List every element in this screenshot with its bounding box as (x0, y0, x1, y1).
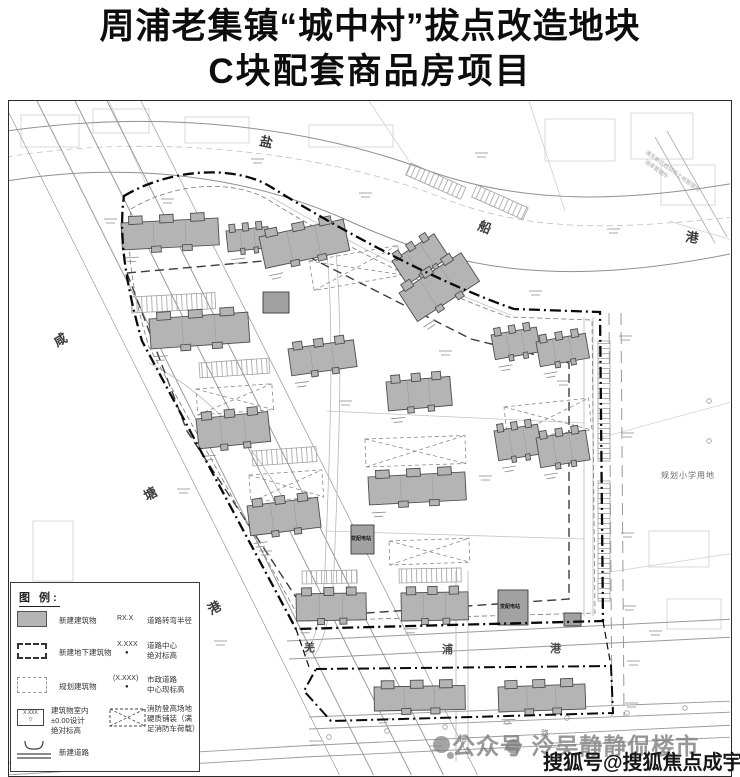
building-tag-text-mark (254, 542, 268, 548)
building-notch (406, 468, 420, 477)
building-tab (555, 463, 561, 470)
canal-label-char: 港 (205, 598, 225, 618)
building-notch (510, 421, 517, 430)
legend-swatch-underground-building (17, 643, 47, 659)
building-notch (497, 424, 504, 433)
building-notch (539, 430, 547, 439)
legend-swatch-new-road (15, 739, 53, 761)
building-tab (511, 456, 516, 463)
fire-pad (389, 538, 470, 565)
annotation-text-mark (214, 641, 227, 645)
building-notch (156, 311, 170, 320)
building-notch (334, 335, 344, 344)
building-notch (437, 467, 451, 476)
fire-pad (365, 436, 466, 467)
top-canal (9, 121, 730, 271)
building-notch (128, 216, 142, 225)
annotation-text-mark (479, 476, 492, 480)
building-notch (406, 587, 416, 595)
building-tab (553, 708, 562, 714)
elevation-dot-icon: ● (125, 650, 129, 656)
facility-label: 变配电站 (351, 535, 371, 542)
tree-icon (625, 711, 630, 716)
building-notch (242, 223, 249, 232)
building-shape (535, 424, 592, 479)
building-tab (243, 441, 251, 448)
title-line-1: 周浦老集镇“城中村”拔点改造地块 (0, 4, 740, 50)
building-body (296, 593, 366, 621)
elevation-dot-icon: ● (125, 684, 129, 690)
building-notch (555, 428, 563, 437)
tree-icon (327, 735, 332, 740)
building-shape (121, 212, 220, 262)
parking-comb (472, 185, 528, 220)
building-notch (449, 586, 459, 594)
parking-comb (131, 293, 216, 313)
building-tab (571, 460, 577, 467)
building-notch (391, 375, 401, 384)
context-lot-outline (631, 113, 693, 159)
annotation-text-mark (439, 351, 452, 355)
school-parcel-label: 规划小学用地 (661, 470, 715, 480)
building-notch (220, 307, 234, 316)
building-notch (555, 331, 563, 340)
building-shape (374, 679, 466, 723)
annotation-text-mark (475, 153, 488, 157)
title-line-2: C块配套商品房项目 (0, 50, 740, 94)
building-tag-text-mark (502, 466, 516, 472)
building-tab (523, 352, 529, 359)
legend-title: 图 例: (19, 589, 60, 607)
facility-building (564, 613, 581, 626)
building-notch (301, 588, 311, 596)
elevation-triangle-icon: ▽ (29, 717, 33, 723)
annotation-text-mark (104, 219, 117, 223)
building-notch (346, 587, 356, 595)
legend-swatch-elevation-box: X.XXX ▽ (17, 709, 44, 726)
building-notch (539, 334, 547, 343)
building-notch (297, 493, 308, 502)
building-notch (410, 680, 423, 688)
elevation-swatch-text: X.XXX (23, 710, 38, 716)
fire-pad (249, 470, 324, 502)
building-shape (258, 213, 353, 280)
building-tab (332, 367, 339, 374)
annotation-text-mark (177, 489, 190, 493)
building-shape (368, 466, 467, 517)
building-notch (292, 341, 302, 350)
annotation-text-mark (557, 381, 570, 385)
canal-label-char: 浦 (442, 642, 453, 656)
building-tab (290, 259, 300, 267)
building-tab (254, 247, 259, 253)
building-tab (407, 407, 414, 414)
building-tab (509, 354, 515, 361)
building-tab (402, 708, 411, 714)
annotation-text-mark (529, 291, 542, 295)
tree-icon (707, 439, 712, 444)
fire-pad-cross (365, 436, 466, 467)
legend-label: 足消防车荷载） (147, 723, 200, 734)
building-notch (224, 409, 235, 418)
building-notch (494, 327, 502, 336)
building-notch (324, 587, 334, 595)
watermark-logo-icon (433, 736, 450, 753)
building-tab (317, 253, 327, 261)
legend-swatch-new-building (17, 611, 47, 627)
building-tab (294, 528, 302, 535)
legend-label: 新建建筑物 (59, 615, 97, 626)
setback-line (129, 186, 595, 621)
canal-label-char: 港 (685, 229, 701, 246)
legend-symbol: RX.X (117, 615, 133, 622)
tree-icon (707, 399, 712, 404)
site-plan-frame: 盐 船 港 咸 塘 港 羌 浦 港 浦 路 规划小学用地 浦东新区规划和土地管理… (8, 100, 732, 777)
building-tab (272, 530, 280, 537)
fire-pad-cross (389, 538, 470, 565)
context-lot-outline (33, 521, 73, 581)
building-notch (255, 221, 262, 230)
building-tab (340, 618, 347, 624)
building-notch (252, 498, 263, 507)
building-shape (535, 327, 592, 378)
building-notch (508, 325, 516, 334)
parking-comb (252, 447, 317, 466)
building-tab (151, 246, 161, 252)
building-tag-text-mark (295, 381, 309, 387)
building-notch (560, 678, 572, 686)
legend-label: 绝对标高 (51, 725, 81, 736)
tree-icon (683, 706, 688, 711)
building-tab (443, 618, 450, 624)
building-tag-text-mark (372, 512, 386, 517)
canal-label-char: 船 (476, 218, 494, 237)
parking-comb (199, 358, 270, 378)
building-tag-text-mark (391, 417, 405, 422)
annotation-text-mark (359, 193, 372, 197)
page-title: 周浦老集镇“城中村”拔点改造地块 C块配套商品房项目 (0, 4, 740, 94)
annotation-text-mark (649, 631, 662, 635)
legend-swatch-fire-pad (109, 708, 147, 728)
building-notch (375, 470, 389, 479)
parking-comb (598, 481, 610, 601)
building-notch (159, 214, 173, 223)
fire-pad-cross (249, 470, 324, 502)
tree-icon (565, 716, 570, 721)
building-tag-text-mark (544, 473, 558, 479)
building-notch (571, 425, 579, 434)
context-lot-outline (309, 125, 393, 147)
page: 周浦老集镇“城中村”拔点改造地块 C块配套商品房项目 (0, 0, 740, 777)
parking-comb (399, 568, 461, 583)
building-notch (229, 224, 236, 233)
building-notch (188, 309, 202, 318)
legend-label: 新建地下建筑物 (59, 647, 112, 658)
building-notch (201, 411, 212, 420)
annotation-text-mark (309, 741, 322, 745)
annotation-text-mark (161, 199, 174, 203)
tree-icon (385, 729, 390, 734)
building-notch (313, 338, 323, 347)
building-tab (422, 619, 429, 625)
building-shape (287, 334, 359, 388)
building-notch (505, 680, 517, 688)
canal-label-char: 咸 (51, 330, 70, 349)
building-notch (524, 419, 531, 428)
building-tab (429, 499, 439, 505)
context-lot-outline (185, 117, 249, 143)
building-shape (493, 418, 544, 472)
building-tab (428, 405, 435, 412)
annotation-text-mark (621, 433, 634, 437)
building-shape (490, 321, 543, 371)
building-tab (241, 248, 246, 254)
building-notch (411, 373, 421, 382)
annotation-text-mark (339, 401, 352, 405)
planned-road-east (609, 313, 624, 716)
annotation-text-mark (251, 159, 264, 163)
building-notch (274, 495, 285, 504)
building-tag-text-mark (499, 365, 513, 371)
building-notch (439, 680, 452, 688)
tree-icon (443, 725, 448, 730)
building-tab (525, 709, 534, 715)
fire-pad-rect (196, 384, 274, 415)
parking-comb (406, 163, 466, 199)
watermark-dark-text: 搜狐号@搜狐焦点成宇站 (543, 746, 740, 775)
facility-building (263, 292, 289, 313)
canal-label-char: 塘 (141, 484, 160, 503)
building-notch (381, 681, 394, 689)
annotation-text-mark (607, 229, 620, 233)
building-shape (296, 587, 367, 633)
legend-label: 道路转弯半径 (147, 615, 192, 626)
canal-label-char: 港 (550, 641, 562, 655)
building-notch (431, 371, 441, 380)
building-tab (212, 342, 222, 349)
context-lot-outline (21, 115, 79, 147)
parking-comb (598, 341, 610, 461)
annotation-text-mark (623, 606, 636, 610)
building-tab (182, 244, 192, 250)
parking-comb (302, 570, 357, 584)
building-tab (398, 501, 408, 507)
building-shape (498, 678, 586, 724)
canal-label-char: 羌 (304, 640, 315, 654)
building-notch (570, 329, 578, 338)
building-tag-text-mark (125, 257, 139, 262)
building-tab (525, 454, 530, 461)
building-tag-text-mark (544, 372, 558, 378)
legend-label: 新建道路 (59, 747, 89, 758)
building-shape (149, 306, 251, 361)
fire-pad (196, 384, 274, 415)
building-tab (220, 444, 228, 451)
legend-symbol: X.XXX (117, 641, 138, 648)
canal-label-char: 盐 (258, 133, 274, 150)
building-notch (533, 679, 545, 687)
building-notch (190, 213, 204, 222)
legend: 图 例: 新建建筑物 RX.X 道路转弯半径 新建地下建筑物 X.XXX ● 道… (10, 582, 200, 772)
legend-symbol: (X.XXX) (113, 675, 138, 682)
building-body (374, 685, 465, 711)
building-tab (181, 344, 191, 351)
legend-label: 规划建筑物 (59, 681, 97, 692)
building-notch (247, 407, 258, 416)
building-body (401, 592, 468, 621)
annotation-text-mark (627, 661, 640, 665)
building-notch (523, 322, 531, 331)
context-lot-outline (545, 119, 615, 161)
building-tab (431, 708, 440, 714)
building-tab (555, 361, 561, 368)
facility-label: 变配电站 (500, 603, 520, 610)
legend-swatch-planned-building (17, 677, 47, 693)
building-tab (317, 619, 324, 625)
building-tab (311, 370, 318, 377)
legend-label: 绝对标高 (147, 650, 177, 661)
building-tag-text-mark (269, 273, 284, 280)
building-tab (571, 358, 577, 365)
building-notch (428, 586, 438, 594)
context-lot-outline (667, 599, 721, 629)
legend-label: 中心现标高 (147, 684, 185, 695)
